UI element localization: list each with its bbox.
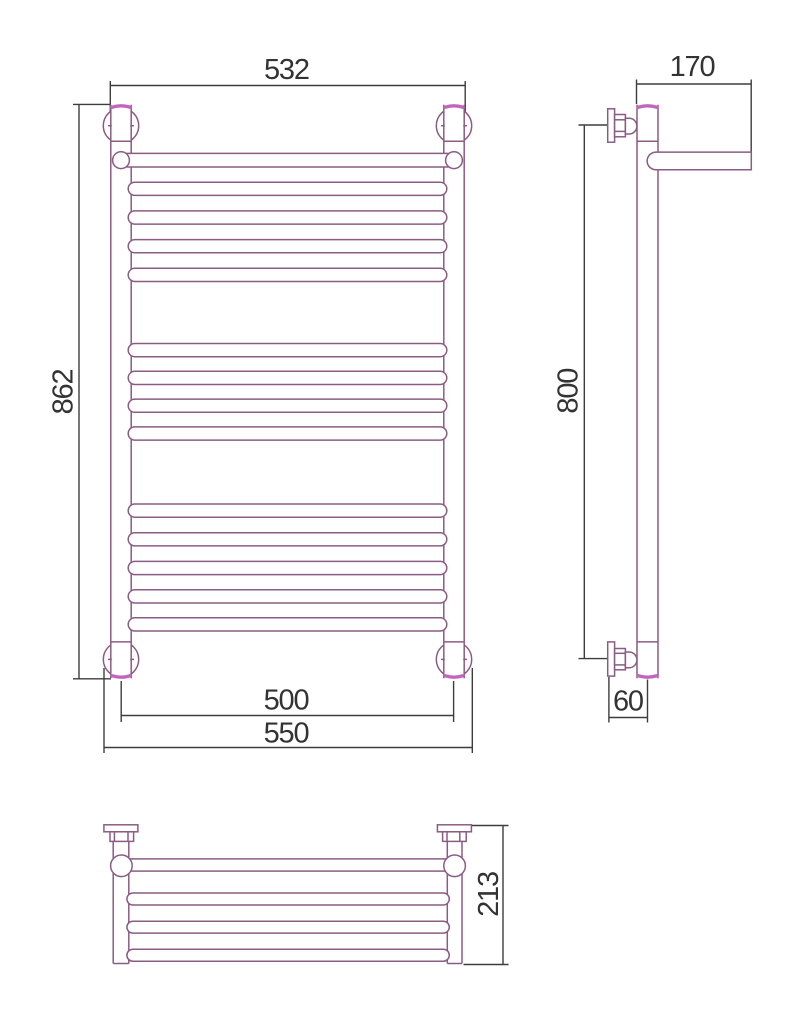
svg-text:170: 170 xyxy=(670,51,715,83)
svg-text:532: 532 xyxy=(264,54,309,86)
svg-text:550: 550 xyxy=(264,718,309,750)
svg-text:500: 500 xyxy=(264,685,309,717)
svg-text:213: 213 xyxy=(473,872,505,917)
svg-text:862: 862 xyxy=(48,370,80,415)
svg-text:800: 800 xyxy=(552,369,584,414)
svg-text:60: 60 xyxy=(613,686,643,718)
